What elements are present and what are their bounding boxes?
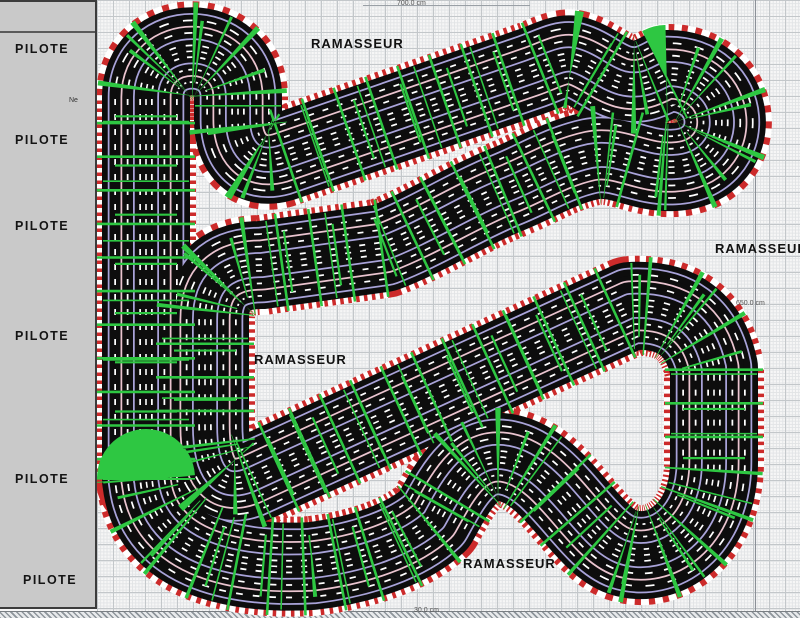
station-label-pilote-4[interactable]: PILOTE [15, 329, 69, 343]
note-label-ne: Ne [69, 97, 78, 104]
dimension-label-top: 700.0 cm [397, 0, 426, 7]
station-label-pilote-1[interactable]: PILOTE [15, 42, 69, 56]
marshal-label-bottom[interactable]: RAMASSEUR [463, 556, 556, 571]
station-label-pilote-6[interactable]: PILOTE [23, 573, 77, 587]
dimension-label-bottom: 30.0 cm [414, 607, 439, 614]
station-label-pilote-3[interactable]: PILOTE [15, 219, 69, 233]
marshal-label-middle[interactable]: RAMASSEUR [254, 352, 347, 367]
track-layers [146, 51, 722, 566]
driver-station-panel[interactable]: PILOTE PILOTE PILOTE PILOTE PILOTE PILOT… [0, 0, 97, 609]
station-label-pilote-5[interactable]: PILOTE [15, 472, 69, 486]
dimension-label-right: 650.0 cm [736, 300, 765, 307]
marshal-label-right[interactable]: RAMASSEUR [715, 241, 800, 256]
track-drawing[interactable] [0, 0, 800, 618]
station-label-pilote-2[interactable]: PILOTE [15, 133, 69, 147]
track-design-canvas: RAMASSEUR RAMASSEUR RAMASSEUR RAMASSEUR … [0, 0, 800, 618]
station-divider [0, 31, 95, 33]
marshal-label-top[interactable]: RAMASSEUR [311, 36, 404, 51]
